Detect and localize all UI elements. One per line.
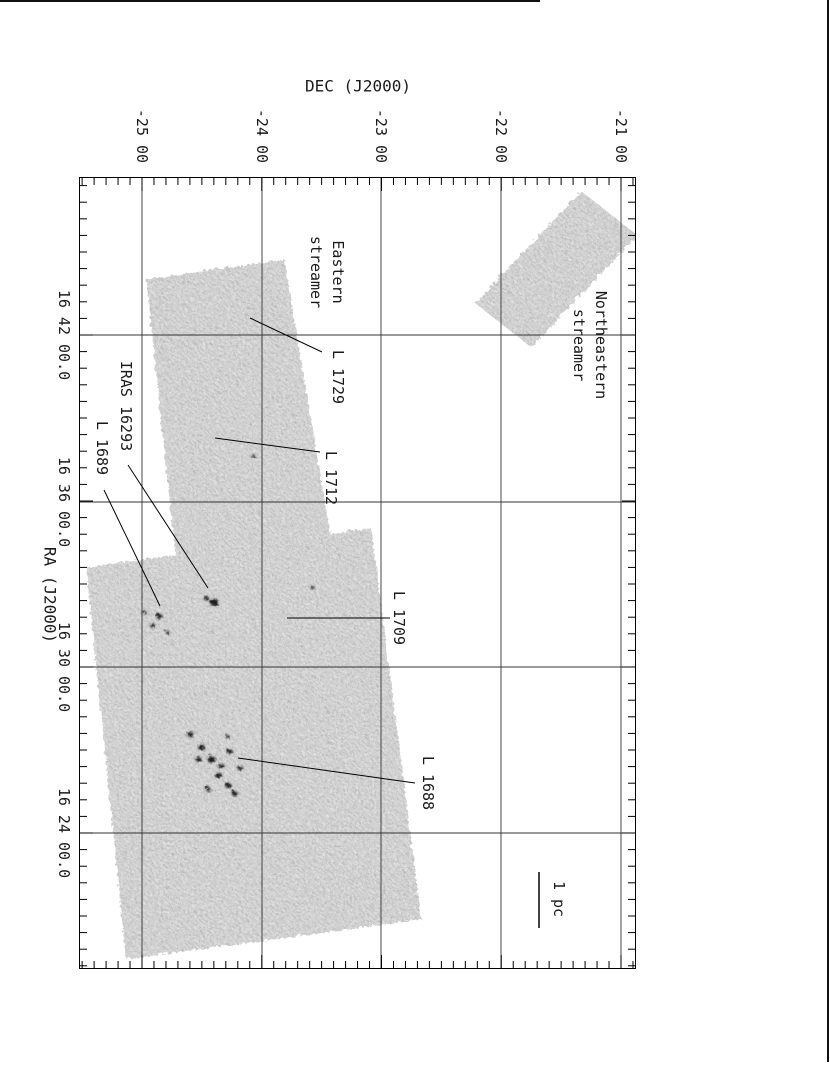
dec-axis-title: DEC (J2000): [305, 77, 411, 96]
annotation-l-1688: L 1688: [417, 756, 439, 810]
page-border-top: [0, 0, 540, 2]
annotation-eastern-streamer: Eastern streamer: [305, 236, 349, 308]
dec-tick-label: -24 00: [253, 109, 271, 163]
ra-tick-label: 16 24 00.0: [55, 788, 73, 878]
survey-map-svg: [80, 178, 635, 968]
annotation-l-1709: L 1709: [388, 591, 410, 645]
dec-tick-label: -25 00: [133, 109, 151, 163]
ra-tick-label: 16 36 00.0: [55, 457, 73, 547]
figure: DEC (J2000) RA (J2000) -25 00-24 00-23 0…: [0, 0, 830, 1076]
survey-regions: [80, 178, 635, 968]
annotation-iras-16293: IRAS 16293: [115, 361, 137, 451]
dec-tick-label: -22 00: [492, 109, 510, 163]
annotation-l-1712: L 1712: [320, 451, 342, 505]
page-border-right: [827, 0, 829, 1062]
plot-area: [79, 177, 636, 969]
ra-tick-label: 16 30 00.0: [55, 622, 73, 712]
annotation-l-1689: L 1689: [91, 421, 113, 475]
annotation-northeastern-streamer: Northeastern streamer: [568, 291, 612, 399]
annotation-l-1729: L 1729: [327, 350, 349, 404]
dec-tick-label: -21 00: [612, 109, 630, 163]
scale-bar-label: 1 pc: [548, 881, 570, 917]
dec-tick-label: -23 00: [372, 109, 390, 163]
ra-tick-label: 16 42 00.0: [55, 290, 73, 380]
